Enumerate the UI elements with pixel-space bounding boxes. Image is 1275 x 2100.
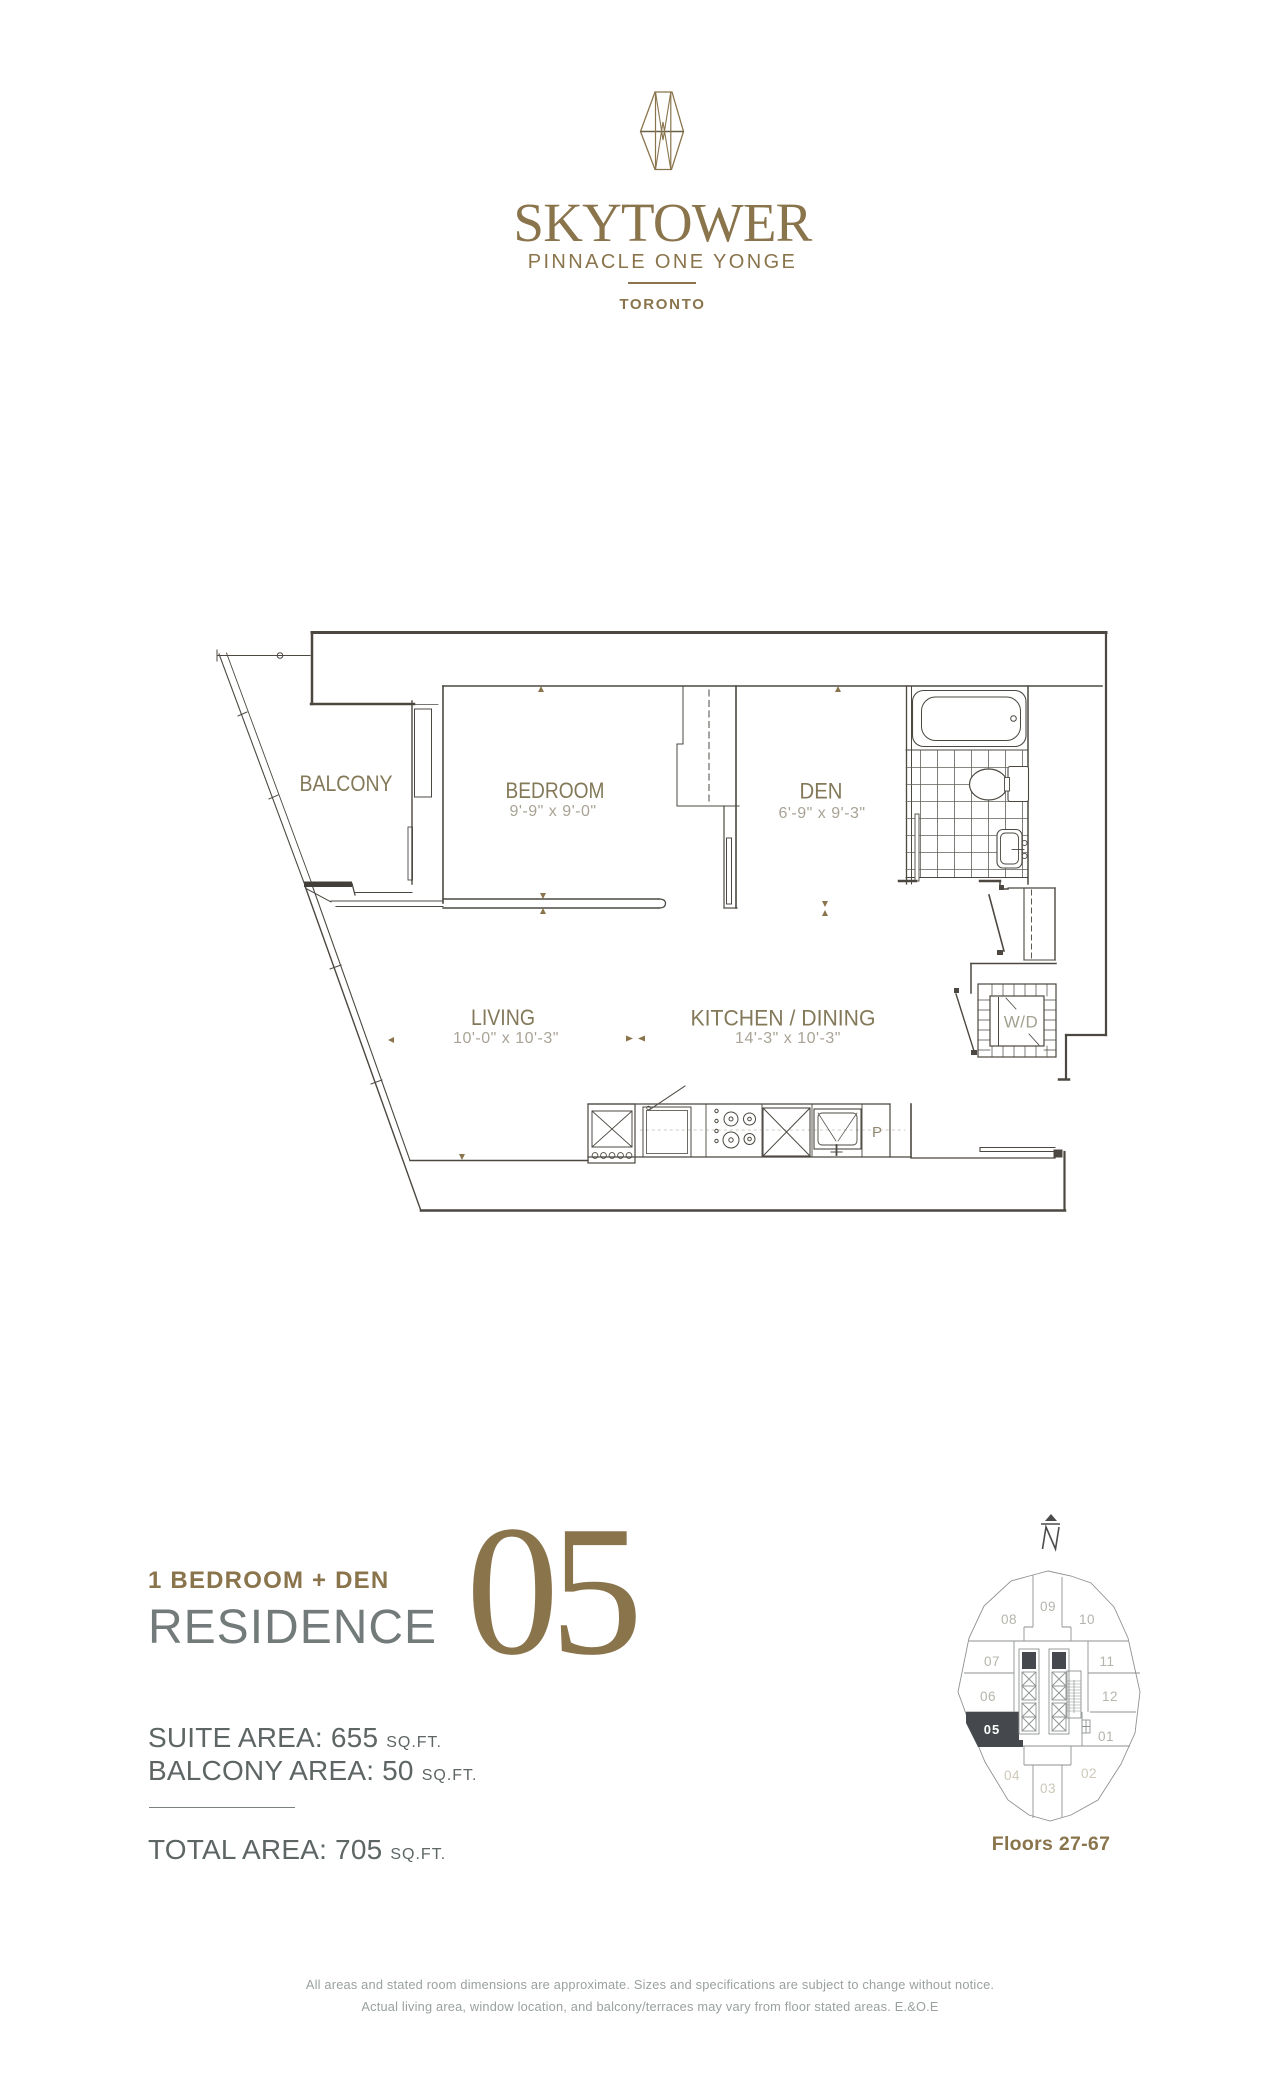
svg-text:6'-9" x 9'-3": 6'-9" x 9'-3" — [778, 805, 865, 822]
svg-text:01: 01 — [1098, 1729, 1114, 1744]
svg-text:W/D: W/D — [1004, 1013, 1039, 1032]
svg-text:04: 04 — [1004, 1768, 1020, 1783]
svg-text:03: 03 — [1040, 1781, 1056, 1796]
svg-text:08: 08 — [1001, 1612, 1017, 1627]
svg-text:10: 10 — [1079, 1612, 1095, 1627]
svg-text:BEDROOM: BEDROOM — [506, 778, 605, 803]
svg-text:10'-0" x 10'-3": 10'-0" x 10'-3" — [453, 1030, 559, 1047]
svg-text:09: 09 — [1040, 1599, 1056, 1614]
svg-text:12: 12 — [1102, 1689, 1118, 1704]
svg-text:05: 05 — [984, 1722, 1000, 1737]
svg-text:14'-3" x 10'-3": 14'-3" x 10'-3" — [735, 1030, 841, 1047]
svg-text:DEN: DEN — [800, 779, 843, 804]
svg-text:BALCONY: BALCONY — [300, 771, 393, 796]
svg-text:LIVING: LIVING — [471, 1005, 535, 1030]
svg-text:02: 02 — [1081, 1766, 1097, 1781]
svg-text:06: 06 — [980, 1689, 996, 1704]
svg-text:11: 11 — [1099, 1654, 1114, 1669]
svg-text:P: P — [872, 1124, 882, 1141]
svg-text:9'-9" x 9'-0": 9'-9" x 9'-0" — [509, 803, 596, 820]
svg-text:KITCHEN / DINING: KITCHEN / DINING — [691, 1006, 876, 1031]
svg-text:07: 07 — [984, 1654, 1000, 1669]
